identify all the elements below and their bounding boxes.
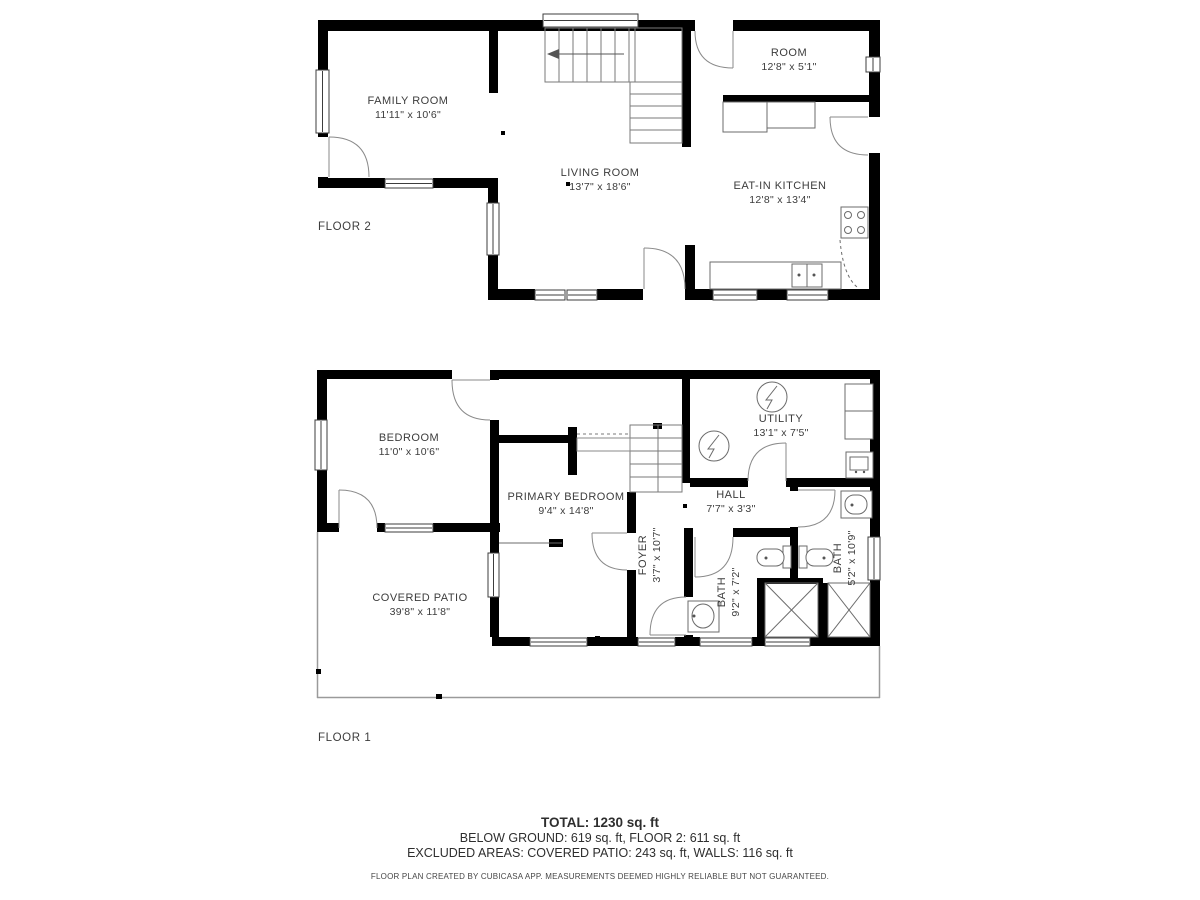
room-dims: 3'7" x 10'7" [650, 527, 664, 582]
room-dims: 39'8" x 11'8" [372, 605, 467, 619]
room-dims: 12'8" x 5'1" [761, 60, 816, 74]
summary-areas: BELOW GROUND: 619 sq. ft, FLOOR 2: 611 s… [0, 831, 1200, 845]
floor2-stairs [545, 28, 682, 143]
room-dims: 13'7" x 18'6" [561, 180, 640, 194]
summary-excluded-areas: EXCLUDED AREAS: COVERED PATIO: 243 sq. f… [0, 846, 1200, 860]
room-label-hall: HALL 7'7" x 3'3" [706, 488, 755, 516]
room-dims: 13'1" x 7'5" [753, 426, 808, 440]
room-dims: 5'2" x 10'9" [845, 530, 859, 585]
room-dims: 11'11" x 10'6" [368, 108, 449, 122]
room-name: BEDROOM [379, 431, 440, 445]
room-label-primary-bedroom: PRIMARY BEDROOM 9'4" x 14'8" [507, 490, 624, 518]
floor2-label: FLOOR 2 [318, 221, 371, 233]
room-dims: 12'8" x 13'4" [734, 193, 827, 207]
floorplan-page: FAMILY ROOM 11'11" x 10'6" LIVING ROOM 1… [0, 0, 1200, 900]
room-name: BATH [831, 530, 845, 585]
room-label-family-room: FAMILY ROOM 11'11" x 10'6" [368, 94, 449, 122]
room-label-room: ROOM 12'8" x 5'1" [761, 46, 816, 74]
room-label-foyer: FOYER 3'7" x 10'7" [636, 527, 664, 582]
room-name: UTILITY [753, 412, 808, 426]
summary-total: TOTAL: 1230 sq. ft [0, 815, 1200, 830]
room-label-living-room: LIVING ROOM 13'7" x 18'6" [561, 166, 640, 194]
room-dims: 7'7" x 3'3" [706, 502, 755, 516]
summary-disclaimer: FLOOR PLAN CREATED BY CUBICASA APP. MEAS… [0, 872, 1200, 881]
room-dims: 9'4" x 14'8" [507, 504, 624, 518]
room-label-bedroom: BEDROOM 11'0" x 10'6" [379, 431, 440, 459]
room-name: BATH [715, 567, 729, 616]
room-name: FAMILY ROOM [368, 94, 449, 108]
room-dims: 11'0" x 10'6" [379, 445, 440, 459]
room-label-eat-in-kitchen: EAT-IN KITCHEN 12'8" x 13'4" [734, 179, 827, 207]
floor-plan-graphics [0, 0, 1200, 900]
room-label-bath-1: BATH 9'2" x 7'2" [715, 567, 743, 616]
room-name: LIVING ROOM [561, 166, 640, 180]
room-label-bath-2: BATH 5'2" x 10'9" [831, 530, 859, 585]
room-label-covered-patio: COVERED PATIO 39'8" x 11'8" [372, 591, 467, 619]
room-name: ROOM [761, 46, 816, 60]
room-name: EAT-IN KITCHEN [734, 179, 827, 193]
room-name: COVERED PATIO [372, 591, 467, 605]
room-dims: 9'2" x 7'2" [729, 567, 743, 616]
room-label-utility: UTILITY 13'1" x 7'5" [753, 412, 808, 440]
room-name: PRIMARY BEDROOM [507, 490, 624, 504]
floor1-showers [765, 583, 870, 637]
floor1-label: FLOOR 1 [318, 732, 371, 744]
room-name: HALL [706, 488, 755, 502]
room-name: FOYER [636, 527, 650, 582]
